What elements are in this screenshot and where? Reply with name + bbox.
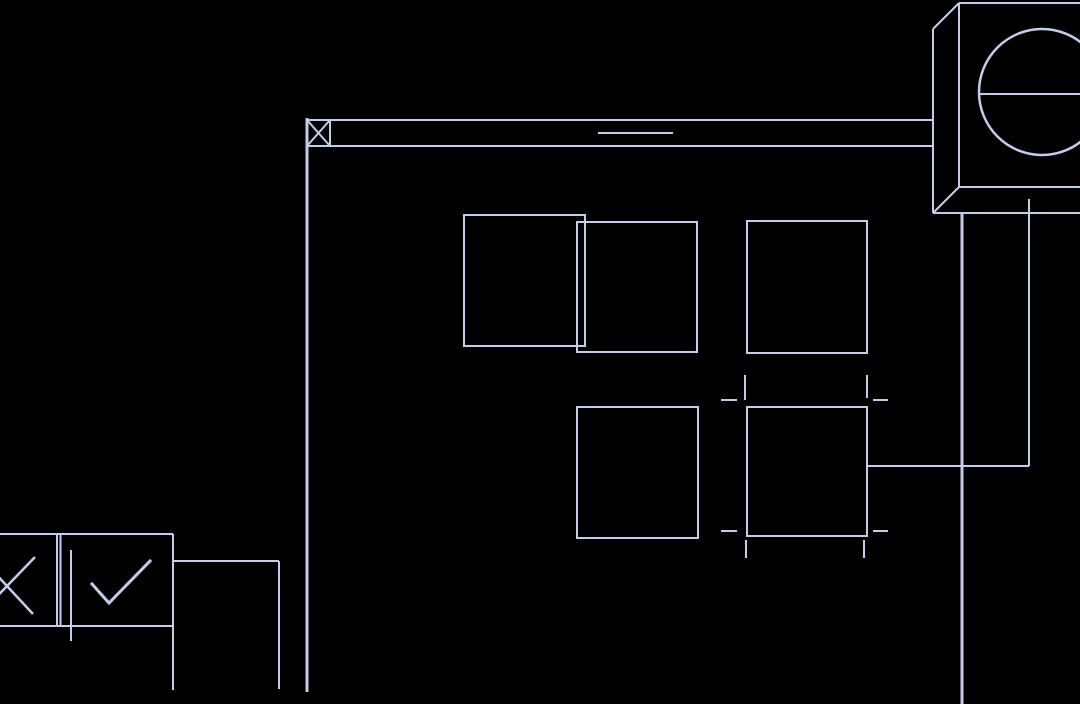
unit-top-corner-diagonal[interactable] (933, 3, 959, 29)
drawing-canvas[interactable] (0, 0, 1080, 704)
unit-bottom-corner-diagonal[interactable] (933, 187, 959, 213)
grid-square-5[interactable] (747, 407, 867, 536)
cad-viewport (0, 0, 1080, 704)
grid-square-4[interactable] (577, 407, 698, 538)
grid-square-2[interactable] (577, 222, 697, 352)
grid-square-1[interactable] (464, 215, 585, 346)
dial-circle[interactable] (979, 29, 1080, 155)
grid-square-3[interactable] (747, 221, 867, 353)
check-glyph[interactable] (92, 561, 150, 603)
